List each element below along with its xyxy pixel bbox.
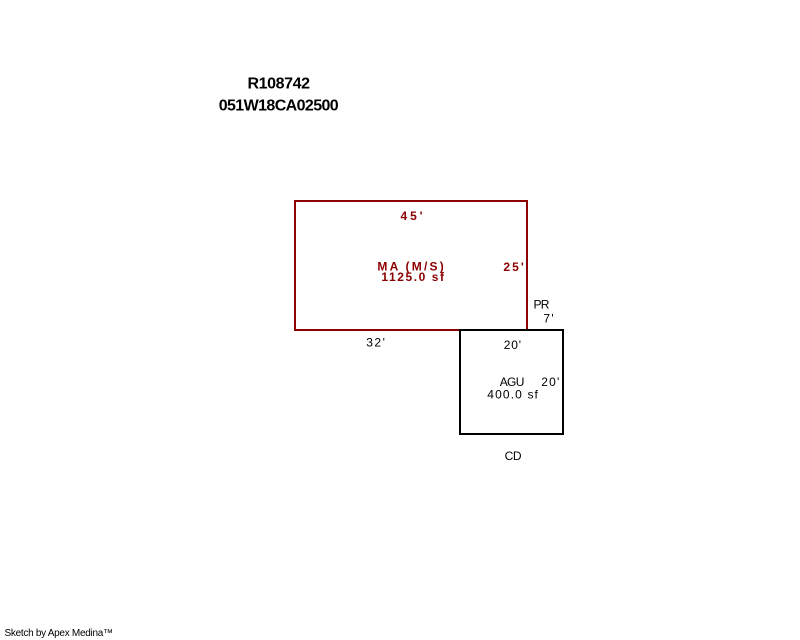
svg-text:32': 32' [366,336,385,350]
svg-text:7': 7' [543,312,553,326]
svg-text:CD: CD [505,449,522,463]
svg-text:Sketch by Apex Medina™: Sketch by Apex Medina™ [5,628,114,639]
svg-text:051W18CA02500: 051W18CA02500 [219,97,339,114]
svg-text:25': 25' [503,260,523,274]
svg-text:R108742: R108742 [248,75,311,92]
svg-text:400.0 sf: 400.0 sf [487,388,538,402]
svg-text:PR: PR [534,298,550,312]
svg-text:45': 45' [401,209,423,223]
svg-text:1125.0 sf: 1125.0 sf [381,270,445,284]
svg-text:20': 20' [504,338,521,352]
svg-text:20': 20' [541,375,559,389]
